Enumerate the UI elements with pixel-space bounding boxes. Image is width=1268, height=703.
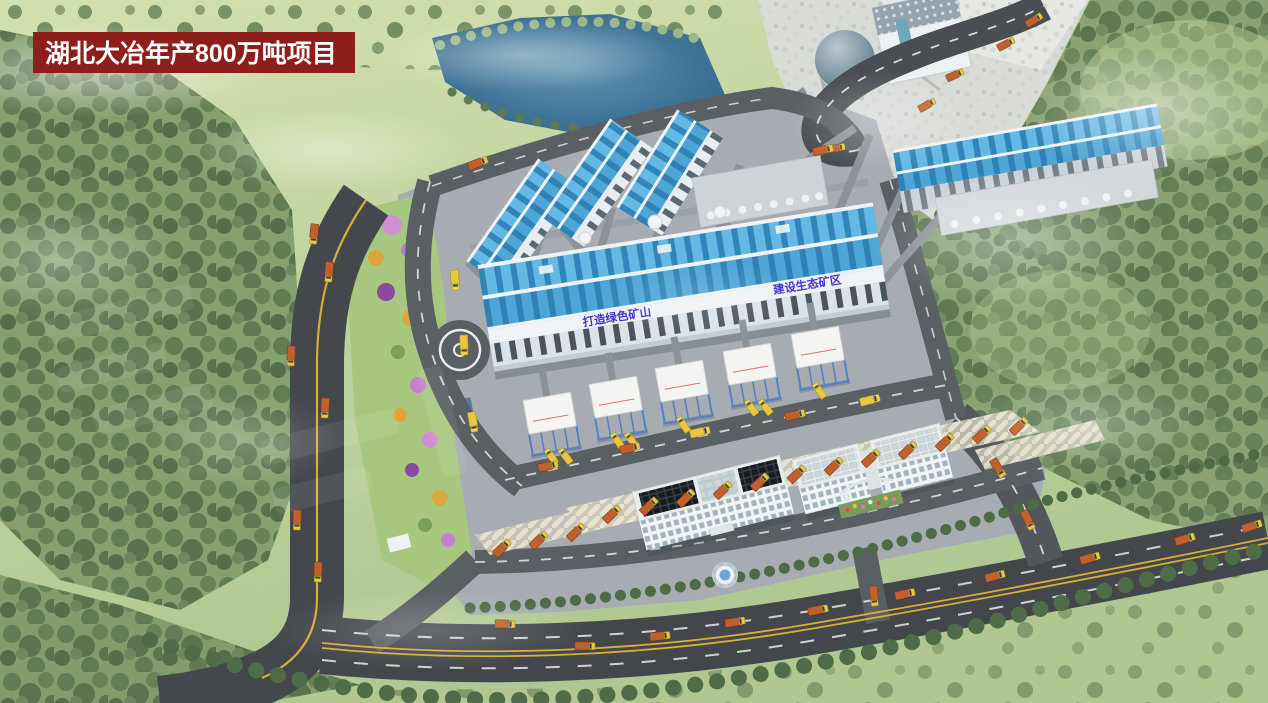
- cylinder-silo: [579, 232, 591, 244]
- truck: [460, 335, 469, 355]
- fountain: [712, 562, 738, 588]
- site-render: 打造绿色矿山 建设生态矿区: [0, 0, 1268, 703]
- truck: [293, 510, 301, 530]
- title-banner: 湖北大冶年产800万吨项目: [33, 32, 355, 73]
- aerial-scene: 打造绿色矿山 建设生态矿区: [0, 0, 1268, 703]
- truck: [287, 346, 296, 366]
- gate-driveway: [864, 548, 878, 622]
- cylinder-silo: [648, 215, 662, 229]
- truck: [314, 562, 323, 582]
- truck: [324, 262, 333, 283]
- cylinder-silo: [714, 206, 726, 218]
- project-title: 湖北大冶年产800万吨项目: [45, 39, 337, 68]
